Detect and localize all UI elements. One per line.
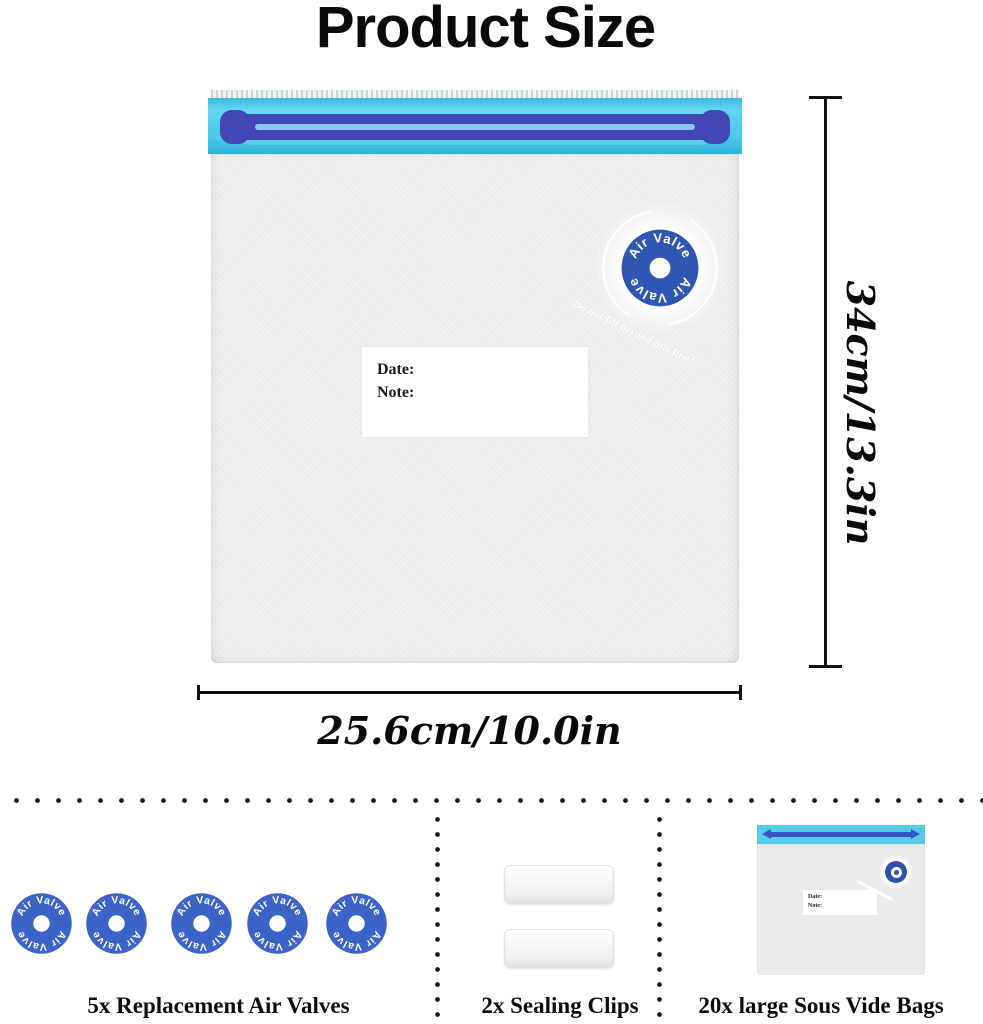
mini-air-valve-icon (885, 861, 907, 883)
air-valve-icon: Air Valve Air Valve (170, 892, 233, 955)
vertical-dotted-divider-2 (655, 808, 664, 1024)
air-valve-icon: Air Valve Air Valve (246, 892, 309, 955)
item-label-air-valves: 5x Replacement Air Valves (0, 993, 437, 1019)
product-size-infographic: Product Size Air Valve Air Valve Do not … (0, 0, 983, 1024)
width-dimension-label: 25.6cm/10.0in (197, 708, 742, 753)
sous-vide-bag-icon: Date: Note: (757, 825, 925, 975)
write-on-label: Date: Note: (362, 347, 588, 437)
page-title: Product Size (0, 0, 971, 61)
vacuum-bag-diagram: Air Valve Air Valve Do not fill beyond t… (208, 90, 742, 663)
air-valve-icon: Air Valve Air Valve (325, 892, 388, 955)
date-field-label: Date: (377, 358, 588, 381)
height-dimension-label: 34cm/13.3in (839, 253, 881, 573)
height-dimension-line (824, 96, 827, 668)
mini-write-on-label: Date: Note: (803, 890, 877, 915)
vertical-dotted-divider-1 (433, 808, 442, 1024)
sealing-clip-icon (504, 929, 614, 968)
mini-bag-zipper (771, 832, 911, 837)
bag-seal-band (208, 98, 742, 154)
width-dimension-line (197, 691, 742, 694)
note-field-label: Note: (377, 381, 588, 404)
bag-zipper (223, 114, 727, 140)
item-label-sous-vide-bags: 20x large Sous Vide Bags (659, 993, 983, 1019)
mini-bag-seal (757, 825, 925, 844)
zipper-channel (255, 124, 695, 130)
horizontal-dotted-divider (0, 796, 983, 805)
item-label-sealing-clips: 2x Sealing Clips (440, 993, 680, 1019)
air-valve-icon: Air Valve Air Valve (85, 892, 148, 955)
air-valve-icon: Air Valve Air Valve (620, 228, 700, 308)
sealing-clip-icon (504, 865, 614, 904)
air-valve-icon: Air Valve Air Valve (10, 892, 73, 955)
